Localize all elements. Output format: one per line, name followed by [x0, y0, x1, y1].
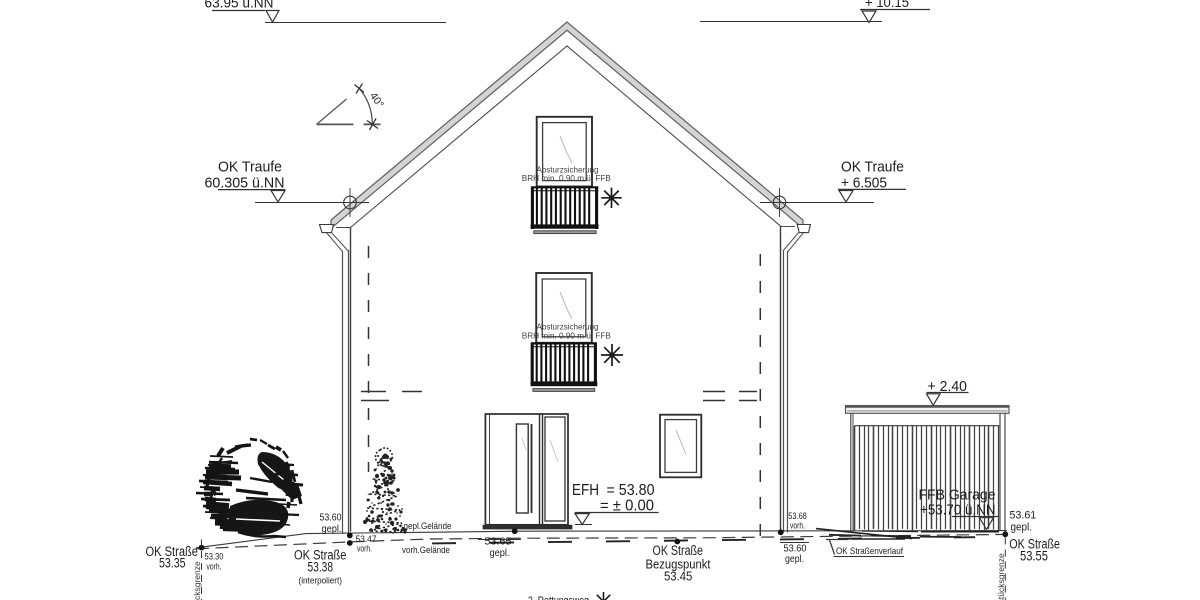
svg-text:gepl.: gepl.	[785, 554, 804, 565]
svg-text:+ 10.15: + 10.15	[865, 0, 909, 10]
svg-text:53.65: 53.65	[485, 537, 512, 548]
svg-text:vorh.: vorh.	[207, 562, 222, 572]
svg-text:OK Traufe: OK Traufe	[841, 159, 904, 176]
svg-text:gepl.: gepl.	[322, 524, 342, 535]
svg-text:vorh.: vorh.	[790, 520, 805, 531]
svg-text:vorh.Gelände: vorh.Gelände	[402, 545, 450, 555]
svg-text:OK Straßenverlauf: OK Straßenverlauf	[836, 546, 903, 557]
svg-text:gepl.: gepl.	[490, 548, 510, 559]
svg-text:Grundstücksgrenze: Grundstücksgrenze	[996, 553, 1006, 600]
svg-text:53.60: 53.60	[320, 512, 342, 523]
svg-text:BRH min. 0.90 m ü. FFB: BRH min. 0.90 m ü. FFB	[522, 173, 611, 183]
svg-text:53.55: 53.55	[1020, 548, 1048, 563]
svg-text:53.38: 53.38	[308, 560, 334, 575]
svg-text:2. Rettungsweg: 2. Rettungsweg	[528, 595, 589, 600]
svg-text:53.30: 53.30	[205, 552, 224, 562]
svg-text:(interpoliert): (interpoliert)	[299, 575, 343, 585]
svg-text:= 53.80: = 53.80	[607, 482, 655, 499]
svg-text:53.45: 53.45	[664, 568, 692, 583]
svg-text:Grundstücksgrenze: Grundstücksgrenze	[192, 561, 202, 600]
svg-text:53.35: 53.35	[159, 556, 186, 571]
svg-text:gepl.: gepl.	[1011, 521, 1033, 533]
svg-text:60.305 ü.NN: 60.305 ü.NN	[205, 174, 285, 191]
svg-text:gepl.Gelände: gepl.Gelände	[404, 521, 452, 531]
svg-text:63.95 ü.NN: 63.95 ü.NN	[205, 0, 274, 11]
svg-text:53.61: 53.61	[1010, 510, 1037, 522]
svg-text:EFH: EFH	[572, 482, 599, 499]
svg-text:+ 6.505: + 6.505	[841, 174, 887, 191]
svg-text:53.60: 53.60	[784, 544, 807, 555]
svg-text:BRH min. 0.90 m ü. FFB: BRH min. 0.90 m ü. FFB	[522, 331, 611, 341]
svg-text:vorh.: vorh.	[357, 543, 372, 554]
svg-text:OK Traufe: OK Traufe	[218, 159, 282, 176]
